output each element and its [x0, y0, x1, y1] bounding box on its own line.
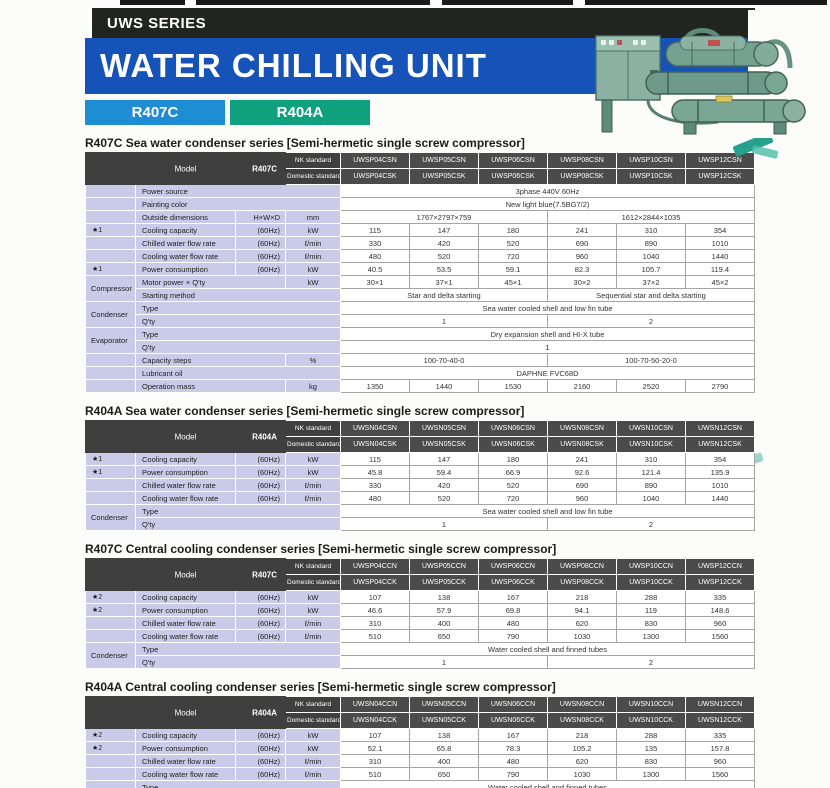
- category-cell: Condenser: [86, 643, 136, 669]
- row-label: Chilled water flow rate: [136, 479, 236, 492]
- value-cell: 107: [341, 729, 410, 742]
- row-label: Q'ty: [136, 656, 341, 669]
- model-name-domestic: UWSN04CSK: [341, 437, 410, 453]
- condition-cell: (60Hz): [236, 617, 286, 630]
- model-name-nk: UWSN05CSN: [410, 421, 479, 437]
- value-cell: 310: [617, 453, 686, 466]
- value-cell: 2: [548, 518, 755, 531]
- star-cell: [86, 211, 136, 224]
- row-label: Lubricant oil: [136, 367, 341, 380]
- model-name-nk: UWSN08CCN: [548, 697, 617, 713]
- value-cell: 115: [341, 224, 410, 237]
- star-cell: ★2: [86, 742, 136, 755]
- nk-standard-label: NK standard: [286, 559, 341, 575]
- value-cell: 40.5: [341, 263, 410, 276]
- unit-cell: ℓ/min: [286, 768, 341, 781]
- value-cell: 167: [479, 729, 548, 742]
- refrigerant-label: R404A: [252, 708, 277, 717]
- star-cell: [86, 198, 136, 211]
- chiller-illustration: [588, 10, 810, 138]
- value-cell: 180: [479, 224, 548, 237]
- row-label: Q'ty: [136, 315, 341, 328]
- value-cell: 1010: [686, 237, 755, 250]
- refrigerant-label: R407C: [252, 570, 277, 579]
- row-label: Power consumption: [136, 742, 236, 755]
- model-name-nk: UWSN05CCN: [410, 697, 479, 713]
- star-cell: ★2: [86, 604, 136, 617]
- unit-cell: kW: [286, 591, 341, 604]
- star-cell: [86, 755, 136, 768]
- unit-cell: ℓ/min: [286, 630, 341, 643]
- unit-cell: ℓ/min: [286, 250, 341, 263]
- value-cell: 1030: [548, 630, 617, 643]
- value-cell: 119.4: [686, 263, 755, 276]
- series-label: UWS SERIES: [107, 15, 206, 32]
- condition-cell: (60Hz): [236, 604, 286, 617]
- row-label: Operation mass: [136, 380, 286, 393]
- value-cell: 1767×2797×759: [341, 211, 548, 224]
- value-cell: 45×2: [686, 276, 755, 289]
- domestic-standard-label: Domestic standard: [286, 437, 341, 453]
- star-cell: ★2: [86, 729, 136, 742]
- value-cell: 510: [341, 630, 410, 643]
- spec-section-4: R404A Central cooling condenser series[S…: [85, 681, 755, 788]
- value-cell: Water cooled shell and finned tubes: [341, 781, 755, 788]
- condition-cell: (60Hz): [236, 237, 286, 250]
- value-cell: 46.6: [341, 604, 410, 617]
- table-title: R404A Central cooling condenser series[S…: [85, 681, 755, 694]
- row-label: Chilled water flow rate: [136, 237, 236, 250]
- value-cell: 37×2: [617, 276, 686, 289]
- row-label: Cooling water flow rate: [136, 250, 236, 263]
- table-title: R404A Sea water condenser series[Semi-he…: [85, 405, 755, 418]
- value-cell: 1300: [617, 630, 686, 643]
- pen-mark: [751, 145, 778, 159]
- value-cell: 1612×2844×1035: [548, 211, 755, 224]
- spec-section-2: R404A Sea water condenser series[Semi-he…: [85, 405, 755, 531]
- value-cell: Star and delta starting: [341, 289, 548, 302]
- value-cell: 1040: [617, 250, 686, 263]
- value-cell: 2790: [686, 380, 755, 393]
- unit-cell: kW: [286, 453, 341, 466]
- value-cell: 288: [617, 591, 686, 604]
- domestic-standard-label: Domestic standard: [286, 713, 341, 729]
- value-cell: 790: [479, 768, 548, 781]
- spec-table-r407c-sea: ModelR407CNK standardUWSP04CSNUWSP05CSNU…: [85, 152, 755, 393]
- model-name-domestic: UWSP06CCK: [479, 575, 548, 591]
- value-cell: 180: [479, 453, 548, 466]
- model-name-domestic: UWSP04CCK: [341, 575, 410, 591]
- refrigerant-label: R404A: [252, 432, 277, 441]
- model-name-nk: UWSP10CSN: [617, 153, 686, 169]
- value-cell: 890: [617, 237, 686, 250]
- value-cell: 1560: [686, 768, 755, 781]
- row-label: Chilled water flow rate: [136, 755, 236, 768]
- value-cell: 400: [410, 617, 479, 630]
- badge-r407c: R407C: [85, 100, 225, 125]
- value-cell: 65.8: [410, 742, 479, 755]
- value-cell: 830: [617, 617, 686, 630]
- condition-cell: (60Hz): [236, 630, 286, 643]
- value-cell: 121.4: [617, 466, 686, 479]
- product-photo: [588, 10, 810, 138]
- condition-cell: (60Hz): [236, 453, 286, 466]
- model-header-cell: ModelR404A: [86, 421, 286, 453]
- spec-section-1: R407C Sea water condenser series[Semi-he…: [85, 137, 755, 393]
- unit-cell: ℓ/min: [286, 237, 341, 250]
- model-name-nk: UWSP05CCN: [410, 559, 479, 575]
- model-name-domestic: UWSP08CSK: [548, 169, 617, 185]
- table-title-text: R404A Sea water condenser series: [85, 404, 283, 418]
- model-name-domestic: UWSP10CCK: [617, 575, 686, 591]
- condition-cell: (60Hz): [236, 479, 286, 492]
- badge-label: R404A: [277, 104, 324, 121]
- value-cell: 53.5: [410, 263, 479, 276]
- model-name-nk: UWSP06CSN: [479, 153, 548, 169]
- value-cell: 960: [548, 492, 617, 505]
- star-cell: [86, 630, 136, 643]
- spec-table-r404a-sea: ModelR404ANK standardUWSN04CSNUWSN05CSNU…: [85, 420, 755, 531]
- row-label: Cooling capacity: [136, 224, 236, 237]
- condition-cell: H×W×D: [236, 211, 286, 224]
- model-name-nk: UWSP05CSN: [410, 153, 479, 169]
- value-cell: 960: [686, 617, 755, 630]
- value-cell: 420: [410, 479, 479, 492]
- value-cell: 119: [617, 604, 686, 617]
- value-cell: 2520: [617, 380, 686, 393]
- value-cell: 960: [548, 250, 617, 263]
- value-cell: Sea water cooled shell and low fin tube: [341, 302, 755, 315]
- value-cell: 650: [410, 768, 479, 781]
- unit-cell: ℓ/min: [286, 617, 341, 630]
- value-cell: New light blue(7.5BG7/2): [341, 198, 755, 211]
- model-name-domestic: UWSP04CSK: [341, 169, 410, 185]
- condition-cell: (60Hz): [236, 742, 286, 755]
- value-cell: 480: [479, 617, 548, 630]
- value-cell: 138: [410, 591, 479, 604]
- unit-cell: kW: [286, 263, 341, 276]
- table-title-text: R407C Sea water condenser series: [85, 136, 284, 150]
- table-subtitle: [Semi-hermetic single screw compressor]: [318, 680, 556, 694]
- model-name-nk: UWSP04CCN: [341, 559, 410, 575]
- spec-table-r407c-central: ModelR407CNK standardUWSP04CCNUWSP05CCNU…: [85, 558, 755, 669]
- row-label: Cooling capacity: [136, 453, 236, 466]
- value-cell: 78.3: [479, 742, 548, 755]
- page-title: WATER CHILLING UNIT: [100, 47, 487, 85]
- domestic-standard-label: Domestic standard: [286, 169, 341, 185]
- model-name-nk: UWSN04CSN: [341, 421, 410, 437]
- model-name-nk: UWSN06CSN: [479, 421, 548, 437]
- table-title-text: R407C Central cooling condenser series: [85, 542, 315, 556]
- star-cell: [86, 768, 136, 781]
- model-name-nk: UWSP12CCN: [686, 559, 755, 575]
- value-cell: 2160: [548, 380, 617, 393]
- model-name-domestic: UWSN10CSK: [617, 437, 686, 453]
- value-cell: 1010: [686, 479, 755, 492]
- star-cell: ★1: [86, 263, 136, 276]
- value-cell: 480: [479, 755, 548, 768]
- value-cell: 135: [617, 742, 686, 755]
- catalog-page: UWS SERIES WATER CHILLING UNIT R407C R40…: [0, 0, 830, 788]
- value-cell: 2: [548, 656, 755, 669]
- value-cell: 241: [548, 453, 617, 466]
- value-cell: Water cooled shell and finned tubes: [341, 643, 755, 656]
- spec-section-3: R407C Central cooling condenser series[S…: [85, 543, 755, 669]
- unit-cell: ℓ/min: [286, 492, 341, 505]
- value-cell: 107: [341, 591, 410, 604]
- value-cell: 57.9: [410, 604, 479, 617]
- value-cell: 138: [410, 729, 479, 742]
- model-name-domestic: UWSN08CSK: [548, 437, 617, 453]
- row-label: Starting method: [136, 289, 341, 302]
- value-cell: 105.2: [548, 742, 617, 755]
- model-name-nk: UWSN06CCN: [479, 697, 548, 713]
- value-cell: 480: [341, 492, 410, 505]
- spec-table-r404a-central: ModelR404ANK standardUWSN04CCNUWSN05CCNU…: [85, 696, 755, 788]
- value-cell: 59.4: [410, 466, 479, 479]
- model-name-nk: UWSN08CSN: [548, 421, 617, 437]
- value-cell: 1: [341, 518, 548, 531]
- unit-cell: ℓ/min: [286, 755, 341, 768]
- model-name-nk: UWSN10CSN: [617, 421, 686, 437]
- row-label: Motor power × Q'ty: [136, 276, 286, 289]
- star-cell: [86, 250, 136, 263]
- table-subtitle: [Semi-hermetic single screw compressor]: [287, 136, 525, 150]
- value-cell: 52.1: [341, 742, 410, 755]
- star-cell: ★1: [86, 453, 136, 466]
- value-cell: 330: [341, 237, 410, 250]
- value-cell: 30×1: [341, 276, 410, 289]
- value-cell: 335: [686, 729, 755, 742]
- value-cell: 480: [341, 250, 410, 263]
- model-name-domestic: UWSN08CCK: [548, 713, 617, 729]
- value-cell: 1: [341, 656, 548, 669]
- condition-cell: (60Hz): [236, 755, 286, 768]
- row-label: Q'ty: [136, 518, 341, 531]
- value-cell: 167: [479, 591, 548, 604]
- value-cell: 45×1: [479, 276, 548, 289]
- unit-cell: kW: [286, 742, 341, 755]
- value-cell: 520: [479, 479, 548, 492]
- model-header-cell: ModelR404A: [86, 697, 286, 729]
- star-cell: [86, 237, 136, 250]
- condition-cell: (60Hz): [236, 768, 286, 781]
- value-cell: 354: [686, 224, 755, 237]
- value-cell: 720: [479, 250, 548, 263]
- value-cell: 690: [548, 479, 617, 492]
- row-label: Type: [136, 781, 341, 788]
- value-cell: 650: [410, 630, 479, 643]
- model-name-domestic: UWSP12CCK: [686, 575, 755, 591]
- value-cell: 1030: [548, 768, 617, 781]
- badge-r404a: R404A: [230, 100, 370, 125]
- model-name-nk: UWSP12CSN: [686, 153, 755, 169]
- row-label: Type: [136, 302, 341, 315]
- value-cell: 1: [341, 315, 548, 328]
- value-cell: 690: [548, 237, 617, 250]
- value-cell: 790: [479, 630, 548, 643]
- value-cell: 720: [479, 492, 548, 505]
- condition-cell: (60Hz): [236, 729, 286, 742]
- badge-label: R407C: [132, 104, 179, 121]
- star-cell: [86, 185, 136, 198]
- value-cell: 59.1: [479, 263, 548, 276]
- star-cell: [86, 492, 136, 505]
- value-cell: Dry expansion shell and HI-X tube: [341, 328, 755, 341]
- value-cell: 148.6: [686, 604, 755, 617]
- value-cell: 30×2: [548, 276, 617, 289]
- row-label: Type: [136, 505, 341, 518]
- model-name-domestic: UWSP05CSK: [410, 169, 479, 185]
- row-label: Type: [136, 643, 341, 656]
- value-cell: 520: [410, 250, 479, 263]
- row-label: Power source: [136, 185, 341, 198]
- unit-cell: kW: [286, 466, 341, 479]
- condition-cell: (60Hz): [236, 263, 286, 276]
- value-cell: 100-70-50-20-0: [548, 354, 755, 367]
- table-title: R407C Sea water condenser series[Semi-he…: [85, 137, 755, 150]
- row-label: Power consumption: [136, 466, 236, 479]
- value-cell: 354: [686, 453, 755, 466]
- star-cell: [86, 354, 136, 367]
- value-cell: 1440: [686, 250, 755, 263]
- model-name-nk: UWSP10CCN: [617, 559, 686, 575]
- row-label: Power consumption: [136, 263, 236, 276]
- value-cell: 241: [548, 224, 617, 237]
- value-cell: 3phase 440V 60Hz: [341, 185, 755, 198]
- value-cell: 82.3: [548, 263, 617, 276]
- value-cell: 157.8: [686, 742, 755, 755]
- category-cell: Evaporator: [86, 328, 136, 354]
- star-cell: [86, 367, 136, 380]
- value-cell: 520: [479, 237, 548, 250]
- unit-cell: kg: [286, 380, 341, 393]
- star-cell: [86, 617, 136, 630]
- table-title-text: R404A Central cooling condenser series: [85, 680, 315, 694]
- row-label: Cooling capacity: [136, 729, 236, 742]
- value-cell: 135.9: [686, 466, 755, 479]
- value-cell: 147: [410, 453, 479, 466]
- value-cell: 330: [341, 479, 410, 492]
- unit-cell: kW: [286, 604, 341, 617]
- value-cell: Sea water cooled shell and low fin tube: [341, 505, 755, 518]
- model-name-nk: UWSP06CCN: [479, 559, 548, 575]
- table-subtitle: [Semi-hermetic single screw compressor]: [286, 404, 524, 418]
- star-cell: ★1: [86, 224, 136, 237]
- nk-standard-label: NK standard: [286, 153, 341, 169]
- model-name-domestic: UWSN05CSK: [410, 437, 479, 453]
- star-cell: [86, 479, 136, 492]
- value-cell: 92.6: [548, 466, 617, 479]
- model-name-nk: UWSN12CSN: [686, 421, 755, 437]
- model-header-cell: ModelR407C: [86, 559, 286, 591]
- model-name-domestic: UWSN06CCK: [479, 713, 548, 729]
- value-cell: 69.8: [479, 604, 548, 617]
- category-cell: Condenser: [86, 505, 136, 531]
- value-cell: 1440: [686, 492, 755, 505]
- model-name-domestic: UWSN12CCK: [686, 713, 755, 729]
- model-name-domestic: UWSN04CCK: [341, 713, 410, 729]
- value-cell: 147: [410, 224, 479, 237]
- value-cell: Sequential star and delta starting: [548, 289, 755, 302]
- model-header-cell: ModelR407C: [86, 153, 286, 185]
- value-cell: 420: [410, 237, 479, 250]
- row-label: Painting color: [136, 198, 341, 211]
- value-cell: 335: [686, 591, 755, 604]
- value-cell: 1560: [686, 630, 755, 643]
- row-label: Cooling water flow rate: [136, 492, 236, 505]
- value-cell: 288: [617, 729, 686, 742]
- value-cell: 620: [548, 617, 617, 630]
- model-name-nk: UWSN04CCN: [341, 697, 410, 713]
- value-cell: 1: [341, 341, 755, 354]
- value-cell: 620: [548, 755, 617, 768]
- star-cell: ★1: [86, 466, 136, 479]
- value-cell: 1530: [479, 380, 548, 393]
- model-name-nk: UWSP04CSN: [341, 153, 410, 169]
- refrigerant-label: R407C: [252, 164, 277, 173]
- value-cell: 100-70-40-0: [341, 354, 548, 367]
- model-name-nk: UWSP08CSN: [548, 153, 617, 169]
- value-cell: 1350: [341, 380, 410, 393]
- value-cell: 1040: [617, 492, 686, 505]
- model-name-domestic: UWSP05CCK: [410, 575, 479, 591]
- unit-cell: %: [286, 354, 341, 367]
- value-cell: 105.7: [617, 263, 686, 276]
- model-name-domestic: UWSP08CCK: [548, 575, 617, 591]
- model-name-domestic: UWSN05CCK: [410, 713, 479, 729]
- value-cell: 66.9: [479, 466, 548, 479]
- model-name-domestic: UWSN10CCK: [617, 713, 686, 729]
- table-title: R407C Central cooling condenser series[S…: [85, 543, 755, 556]
- unit-cell: ℓ/min: [286, 479, 341, 492]
- value-cell: 830: [617, 755, 686, 768]
- row-label: Cooling capacity: [136, 591, 236, 604]
- condition-cell: (60Hz): [236, 224, 286, 237]
- row-label: Cooling water flow rate: [136, 630, 236, 643]
- unit-cell: mm: [286, 211, 341, 224]
- star-cell: ★2: [86, 591, 136, 604]
- value-cell: DAPHNE FVC68D: [341, 367, 755, 380]
- value-cell: 115: [341, 453, 410, 466]
- model-name-domestic: UWSP10CSK: [617, 169, 686, 185]
- row-label: Type: [136, 328, 341, 341]
- domestic-standard-label: Domestic standard: [286, 575, 341, 591]
- model-name-domestic: UWSN12CSK: [686, 437, 755, 453]
- value-cell: 2: [548, 315, 755, 328]
- value-cell: 310: [617, 224, 686, 237]
- model-name-nk: UWSN12CCN: [686, 697, 755, 713]
- category-cell: Condenser: [86, 781, 136, 788]
- value-cell: 37×1: [410, 276, 479, 289]
- value-cell: 218: [548, 591, 617, 604]
- unit-cell: kW: [286, 276, 341, 289]
- value-cell: 310: [341, 755, 410, 768]
- unit-cell: kW: [286, 729, 341, 742]
- row-label: Power consumption: [136, 604, 236, 617]
- model-name-domestic: UWSP12CSK: [686, 169, 755, 185]
- condition-cell: (60Hz): [236, 466, 286, 479]
- star-cell: [86, 380, 136, 393]
- value-cell: 310: [341, 617, 410, 630]
- value-cell: 94.1: [548, 604, 617, 617]
- model-name-nk: UWSP08CCN: [548, 559, 617, 575]
- table-subtitle: [Semi-hermetic single screw compressor]: [318, 542, 556, 556]
- value-cell: 1300: [617, 768, 686, 781]
- category-cell: Compressor: [86, 276, 136, 302]
- condition-cell: (60Hz): [236, 250, 286, 263]
- value-cell: 520: [410, 492, 479, 505]
